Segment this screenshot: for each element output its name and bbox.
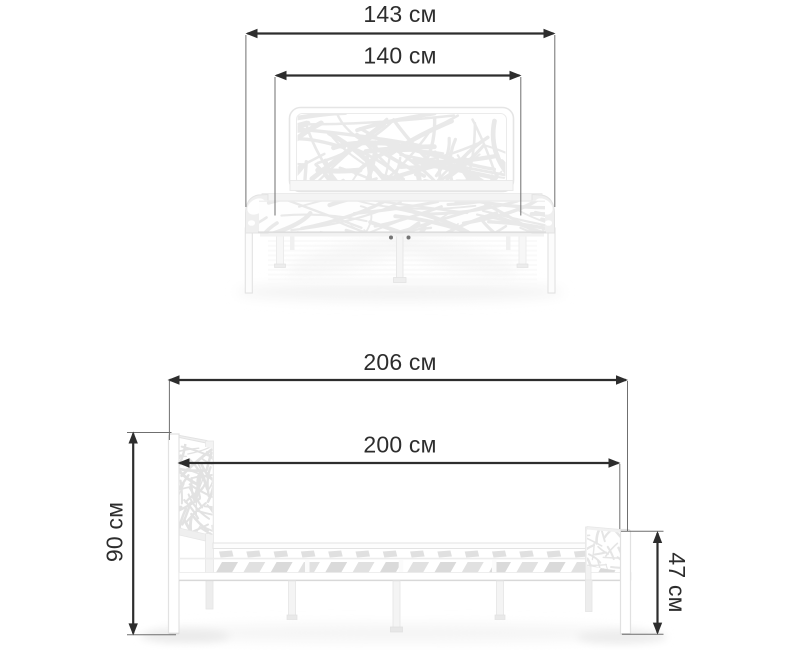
svg-text:206 см: 206 см <box>363 349 436 375</box>
svg-text:90 см: 90 см <box>102 502 128 562</box>
svg-text:143 см: 143 см <box>363 1 436 27</box>
svg-text:47 см: 47 см <box>664 552 690 612</box>
svg-text:200 см: 200 см <box>363 432 436 458</box>
svg-text:140 см: 140 см <box>363 43 436 69</box>
